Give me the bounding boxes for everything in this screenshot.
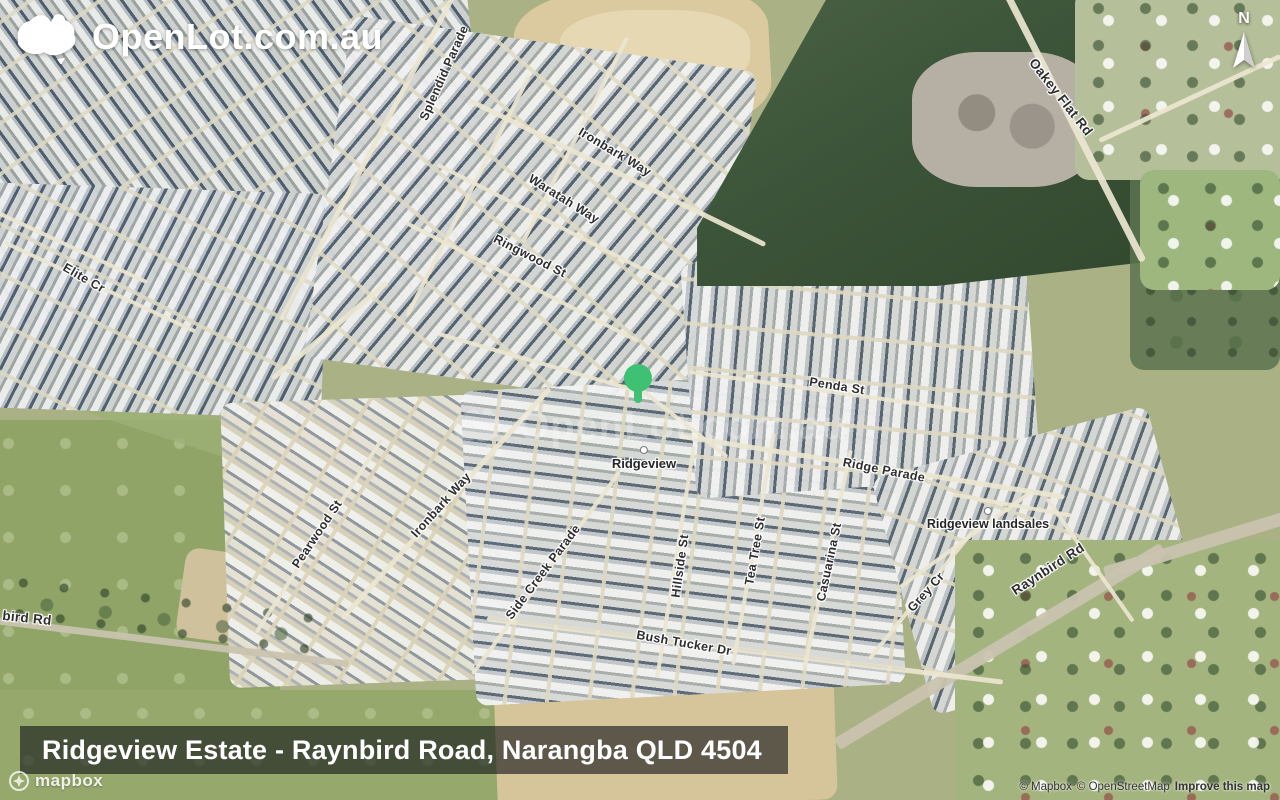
suburb-right-mid [1140,170,1280,290]
place-dot [984,507,992,515]
improve-map-link[interactable]: Improve this map [1175,781,1270,793]
attribution-osm-link[interactable]: © OpenStreetMap [1077,781,1170,793]
compass-needle-icon [1228,30,1260,72]
map-marker-head [624,364,652,392]
place-dot [640,446,648,454]
place-label-ridgeview: Ridgeview [612,446,676,471]
place-label-ridgeview-landsales: Ridgeview landsales [927,507,1049,531]
australia-icon [10,10,80,64]
map-attribution: © Mapbox © OpenStreetMap Improve this ma… [1019,781,1270,793]
openlot-logo-text: OpenLot.com.au [92,16,383,58]
place-name: Ridgeview landsales [927,517,1049,531]
openlot-logo[interactable]: OpenLot.com.au [10,10,383,64]
attribution-mapbox-link[interactable]: © Mapbox [1019,781,1072,793]
map-marker[interactable] [624,364,652,406]
mapbox-logo[interactable]: mapbox [8,770,103,792]
suburb-elite [0,182,329,419]
compass-north-label: N [1224,10,1264,28]
title-bar: Ridgeview Estate - Raynbird Road, Narang… [20,726,788,774]
mapbox-wordmark-text: mapbox [35,771,103,791]
compass[interactable]: N [1224,10,1264,82]
map-viewport[interactable]: Splendid Parade Ironbark Way Waratah Way… [0,0,1280,800]
mapbox-icon [8,770,30,792]
page-title: Ridgeview Estate - Raynbird Road, Narang… [42,735,762,766]
place-name: Ridgeview [612,456,676,471]
